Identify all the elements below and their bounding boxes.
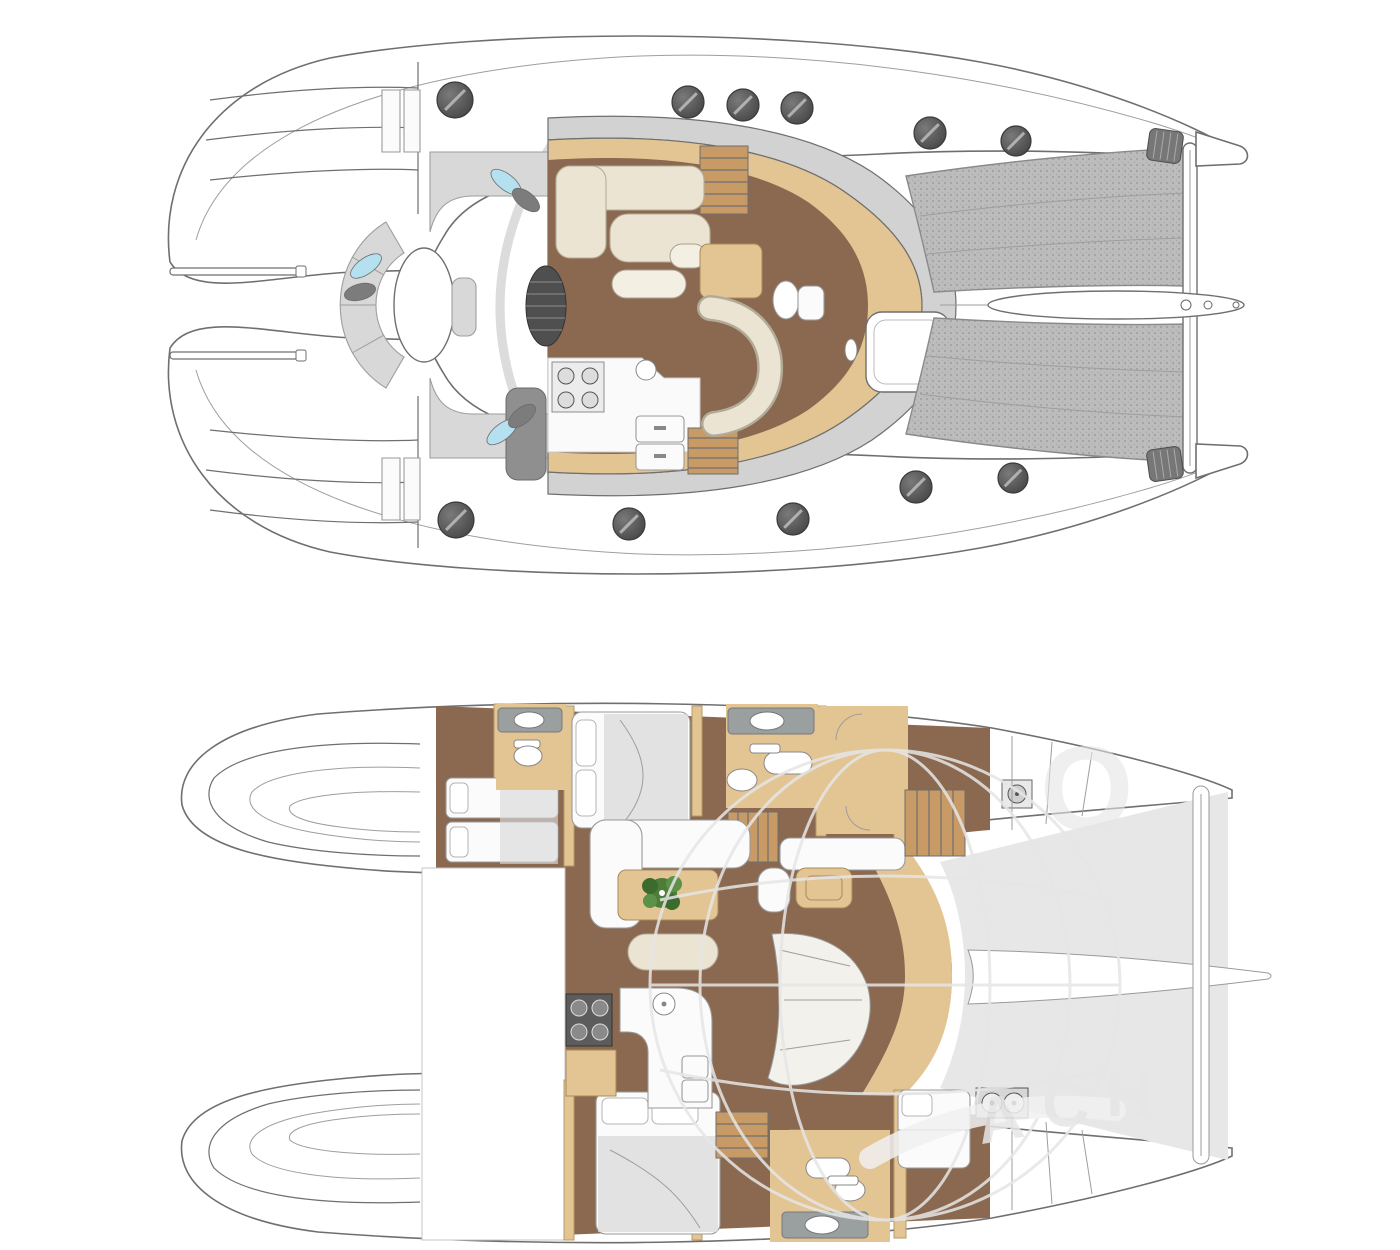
nav-desk [796,868,852,908]
galley-cabinet-tan [566,1050,616,1096]
boarding-rail-end [296,266,306,277]
potted-plant [642,876,682,910]
saloon-stairs-fwd [700,146,748,214]
bridgedeck-blank-area [422,868,565,1240]
watermark-letter: H [1106,1058,1152,1130]
bow-cap-starboard [1196,444,1248,478]
galley-drawers [682,1080,708,1102]
foredeck-handle [845,339,857,361]
trampoline-starboard [906,318,1186,462]
cockpit-stool [452,278,476,336]
saloon-stairs-lower [905,790,965,856]
trampoline-port [906,148,1186,292]
galley-stove-lower [566,994,612,1046]
galley-stove [552,362,604,412]
watermark-letter: O [1040,722,1133,856]
cockpit-round-table [394,248,454,362]
bowsprit-fitting [1204,301,1212,309]
bow-assembly [906,128,1248,482]
saloon-cabinet-pod [798,286,824,320]
coachroof-saloon [526,116,956,495]
bow-cleat-port [1146,128,1184,164]
bowsprit-fitting [1233,302,1239,308]
toilet [514,746,542,766]
cockpit-wetbar-grill [526,266,566,346]
port-mid-bathroom [726,704,818,808]
watermark-letter: C [1039,1066,1091,1142]
boarding-rail-end [296,350,306,361]
boarding-rail [170,352,304,359]
catamaran-floorplan-sheet: O A C H [0,0,1400,1250]
bowsprit-fitting [1181,300,1191,310]
port-corridor [820,706,908,834]
upper-deck-plan [168,36,1247,574]
saloon-sofa-corner [556,166,606,258]
dinette-table [700,244,762,298]
bow-cleat-starboard [1146,446,1184,482]
saloon-coffee-table [612,270,686,298]
saloon-sink-pod [773,281,799,319]
starboard-double-cabin [596,1092,720,1234]
galley-sink [636,360,656,380]
floorplan-drawing: O A C H [0,0,1400,1250]
boarding-rail [170,268,304,275]
toilet [727,769,757,791]
port-double-cabin [572,712,690,828]
bow-cap-port [1196,132,1248,166]
port-aft-bathroom [496,704,566,790]
